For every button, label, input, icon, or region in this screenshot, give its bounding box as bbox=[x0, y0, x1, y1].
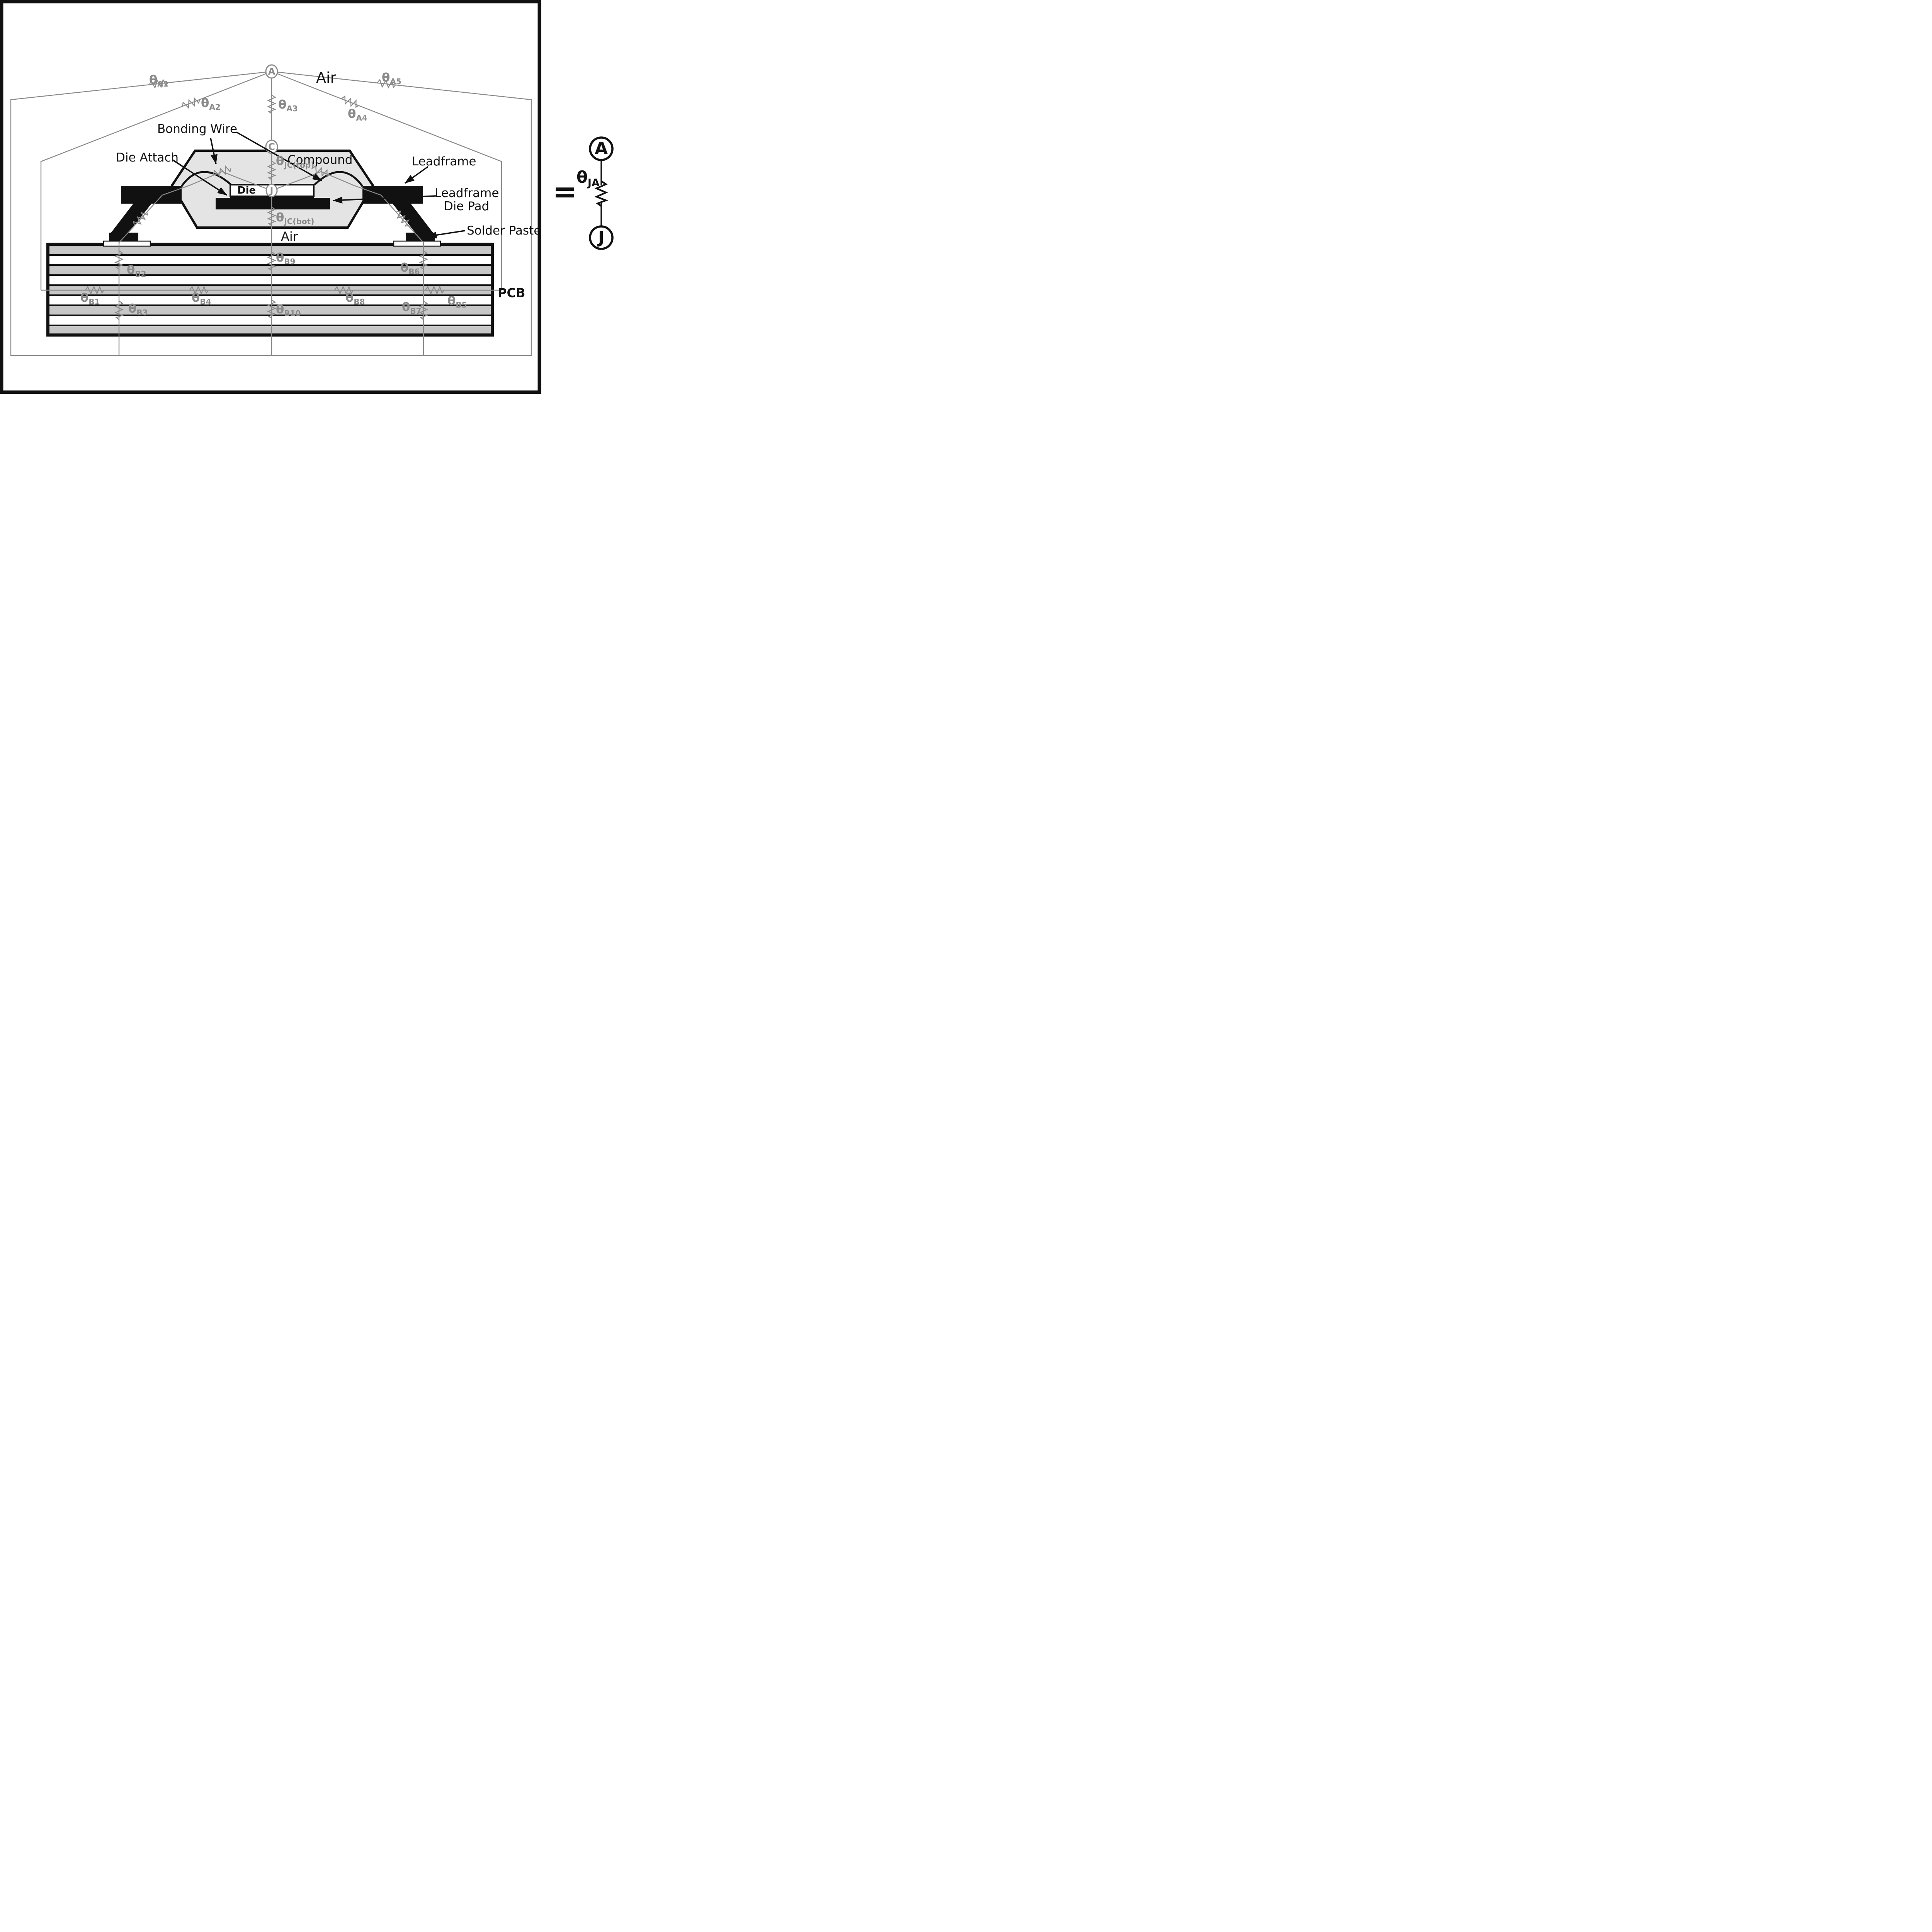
theta-a5-label: θA5 bbox=[382, 72, 401, 85]
theta-b7-label: θB7 bbox=[402, 301, 421, 315]
die-label: Die bbox=[237, 185, 256, 196]
eq-node-junction-letter: J bbox=[586, 228, 617, 247]
node-ambient-letter: A bbox=[264, 66, 279, 77]
air-gap-label: Air bbox=[281, 230, 298, 243]
leadframe-right-bar bbox=[362, 186, 423, 204]
thermal-metrics-diagram: Air Bonding Wire Die Attach Compound Lea… bbox=[0, 0, 618, 394]
theta-b9-label: θB9 bbox=[276, 252, 295, 265]
solder-paste-left bbox=[104, 241, 150, 246]
leadframe-left-bar bbox=[121, 186, 182, 204]
pcb-layer bbox=[49, 276, 491, 284]
pcb-layer bbox=[49, 246, 491, 254]
leadframe-die-pad-label: Leadframe Die Pad bbox=[435, 187, 498, 213]
solder-paste-right bbox=[394, 241, 440, 246]
theta-a1-label: θA1 bbox=[149, 74, 169, 88]
die-attach-label: Die Attach bbox=[116, 151, 179, 164]
pcb-layer bbox=[49, 326, 491, 333]
diagram-artwork bbox=[0, 0, 618, 394]
theta-b6-label: θB6 bbox=[400, 262, 420, 276]
node-case-letter: C bbox=[264, 141, 279, 153]
pcb-label: PCB bbox=[498, 287, 525, 300]
theta-b10-label: θB10 bbox=[276, 304, 301, 317]
leadframe-die-pad-line1: Leadframe bbox=[435, 187, 498, 200]
leadframe-left-foot bbox=[109, 233, 138, 241]
eq-node-ambient-letter: A bbox=[586, 139, 617, 158]
solder-paste-label: Solder Paste bbox=[467, 224, 541, 237]
pcb-layer bbox=[49, 266, 491, 274]
leadframe-die-pad-line2: Die Pad bbox=[435, 200, 498, 213]
theta-b5-label: θB5 bbox=[447, 295, 467, 309]
theta-b2-label: θB2 bbox=[127, 264, 146, 278]
bonding-wire-label: Bonding Wire bbox=[157, 123, 237, 136]
air-top-label: Air bbox=[316, 70, 336, 86]
theta-b8-label: θB8 bbox=[345, 292, 365, 306]
theta-a4-label: θA4 bbox=[348, 108, 367, 122]
theta-a2-label: θA2 bbox=[201, 97, 221, 111]
equals-sign: = bbox=[553, 177, 577, 206]
theta-jc-top-label: θJC(top) bbox=[276, 155, 314, 169]
leadframe-arrow bbox=[405, 167, 428, 183]
pcb-layer bbox=[49, 296, 491, 304]
theta-jc-bot-label: θJC(bot) bbox=[276, 212, 314, 225]
theta-a3-label: θA3 bbox=[278, 99, 298, 112]
theta-b4-label: θB4 bbox=[192, 292, 211, 306]
theta-b3-label: θB3 bbox=[128, 303, 148, 316]
theta-b1-label: θB1 bbox=[80, 292, 100, 306]
theta-ja-label: θJA bbox=[577, 169, 600, 188]
leadframe-label: Leadframe bbox=[412, 155, 476, 168]
node-junction-letter: J bbox=[264, 185, 279, 196]
leadframe-right-leg bbox=[393, 204, 434, 233]
